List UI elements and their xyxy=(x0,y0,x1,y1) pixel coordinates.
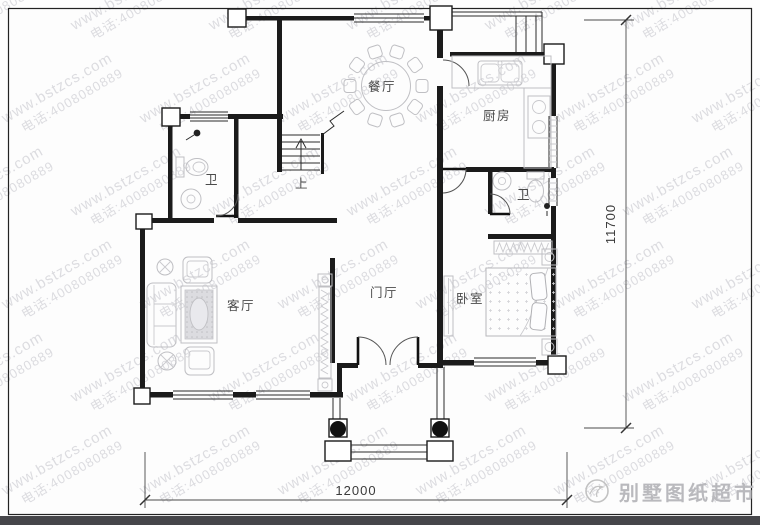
dimension-bottom: 12000 xyxy=(140,452,572,508)
kitchen-stove xyxy=(528,96,550,138)
pillow xyxy=(530,272,548,300)
kitchen-terrace-edge xyxy=(452,12,542,52)
entrance-porch xyxy=(325,367,453,461)
wash-basin xyxy=(181,189,201,209)
floor-plan-canvas: www.bstzcs.com电话:4008080889www.bstzcs.co… xyxy=(0,0,760,525)
toilet-tank xyxy=(527,172,544,179)
staircase: 上 xyxy=(282,111,344,191)
bedroom-label: 卧室 xyxy=(456,291,484,306)
toilet-tank xyxy=(176,157,184,177)
entrance-steps xyxy=(351,445,427,459)
foyer-label: 门厅 xyxy=(370,285,398,300)
brand-logo-icon xyxy=(586,480,608,502)
dimension-height-value: 11700 xyxy=(603,204,618,244)
stairs-up-label: 上 xyxy=(295,177,309,191)
sofa xyxy=(147,283,176,347)
porch-column xyxy=(330,421,346,437)
floor-plan-drawing: 上 xyxy=(0,0,760,525)
exterior-walls xyxy=(140,16,556,398)
pillow xyxy=(530,302,548,330)
site-branding: 别墅图纸超市 xyxy=(586,480,757,505)
dimension-right: 11700 xyxy=(584,15,634,433)
brand-site-name: 别墅图纸超市 xyxy=(618,481,757,505)
living-room-furniture xyxy=(147,257,332,391)
bath-upper-label: 卫 xyxy=(205,173,219,187)
floor-drain xyxy=(194,130,201,137)
porch-column xyxy=(432,421,448,437)
wash-basin xyxy=(493,172,511,190)
living-room-label: 客厅 xyxy=(227,298,255,313)
bottom-bar xyxy=(0,516,760,525)
floor-drain xyxy=(544,203,550,209)
dimension-width-value: 12000 xyxy=(335,483,376,498)
bath-upper-fixtures xyxy=(176,130,208,209)
dining-room-label: 餐厅 xyxy=(368,79,396,94)
kitchen-label: 厨房 xyxy=(483,108,511,123)
bath-lower-label: 卫 xyxy=(517,188,531,202)
